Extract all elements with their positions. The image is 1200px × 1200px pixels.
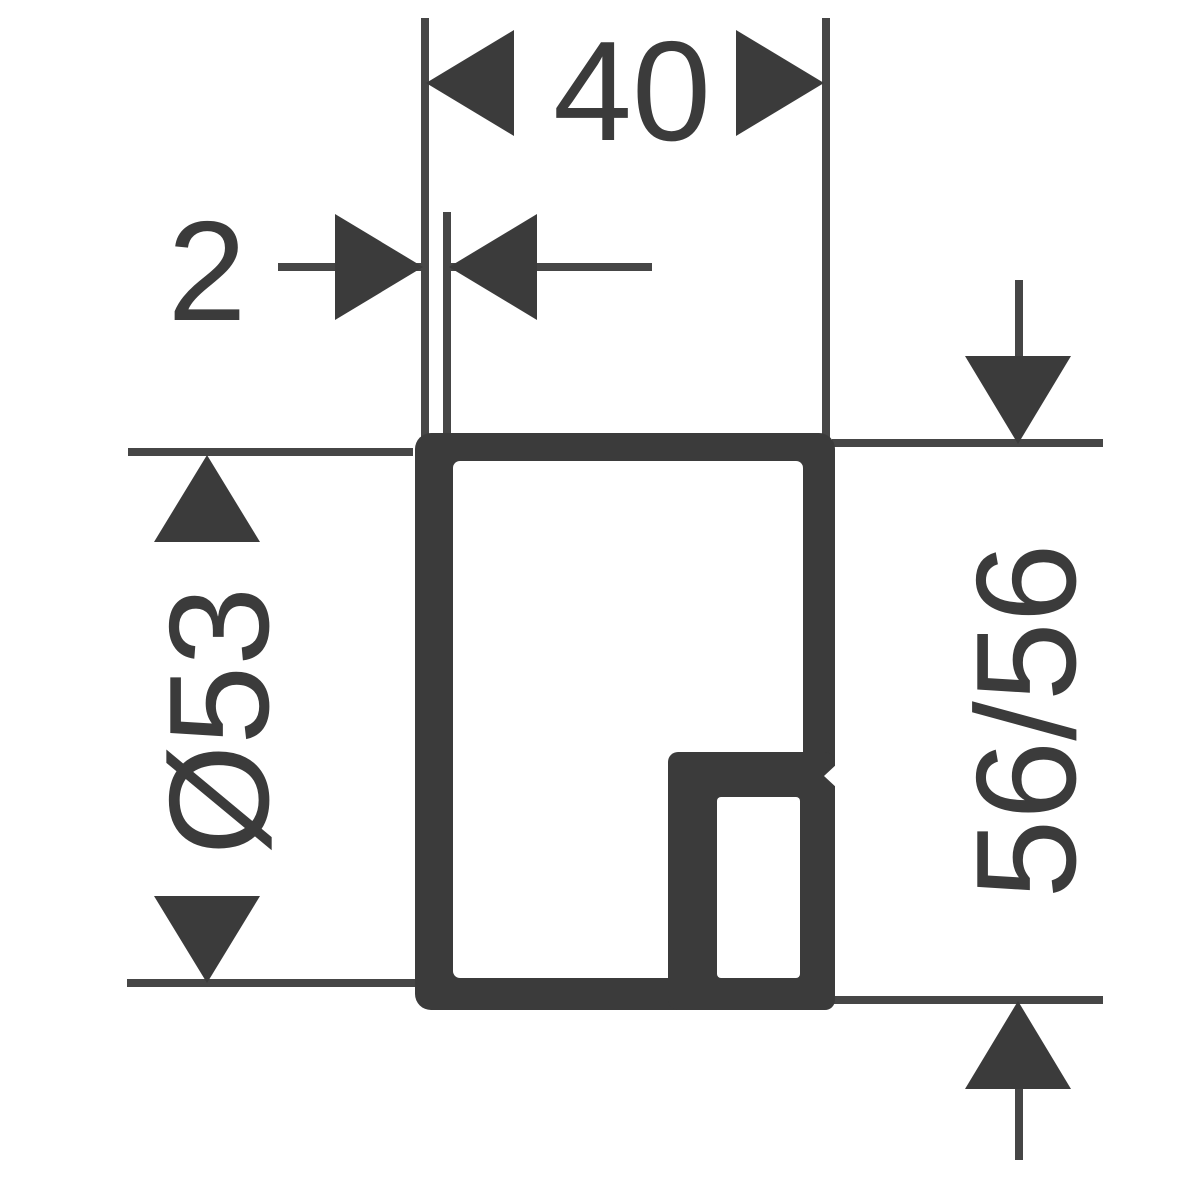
dim-thickness-label: 2 <box>168 192 247 351</box>
width-arrow-right-icon <box>736 30 824 136</box>
thickness-arrow-right-icon <box>335 214 423 320</box>
dim-width-label: 40 <box>553 12 711 171</box>
sleeve-inner-window <box>717 797 800 978</box>
dim-diameter-label: Ø53 <box>140 587 299 855</box>
height-arrow-down-icon <box>965 356 1071 444</box>
width-arrow-left-icon <box>426 30 514 136</box>
diameter-arrow-down-icon <box>154 896 260 983</box>
diameter-arrow-up-icon <box>154 455 260 542</box>
height-arrow-up-icon <box>965 1001 1071 1089</box>
drawing-canvas: 40 2 Ø53 56/56 <box>0 0 1200 1200</box>
dim-height-label: 56/56 <box>947 543 1106 898</box>
dimension-drawing: 40 2 Ø53 56/56 <box>0 0 1200 1200</box>
part-outline <box>415 433 838 1010</box>
thickness-arrow-left-icon <box>449 214 537 320</box>
